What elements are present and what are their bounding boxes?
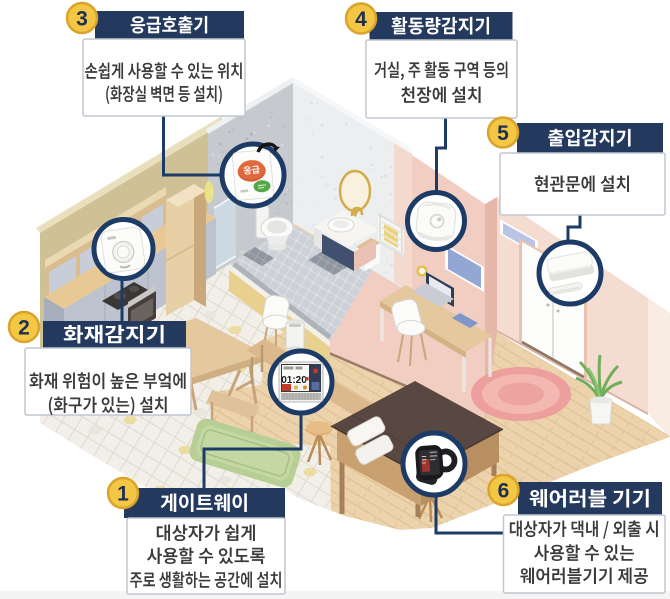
svg-text:1: 1	[117, 483, 129, 506]
svg-text:5: 5	[497, 122, 509, 145]
svg-text:4: 4	[355, 8, 367, 31]
svg-text:6: 6	[498, 480, 510, 503]
svg-text:2: 2	[18, 317, 30, 340]
svg-text:3: 3	[76, 8, 88, 31]
